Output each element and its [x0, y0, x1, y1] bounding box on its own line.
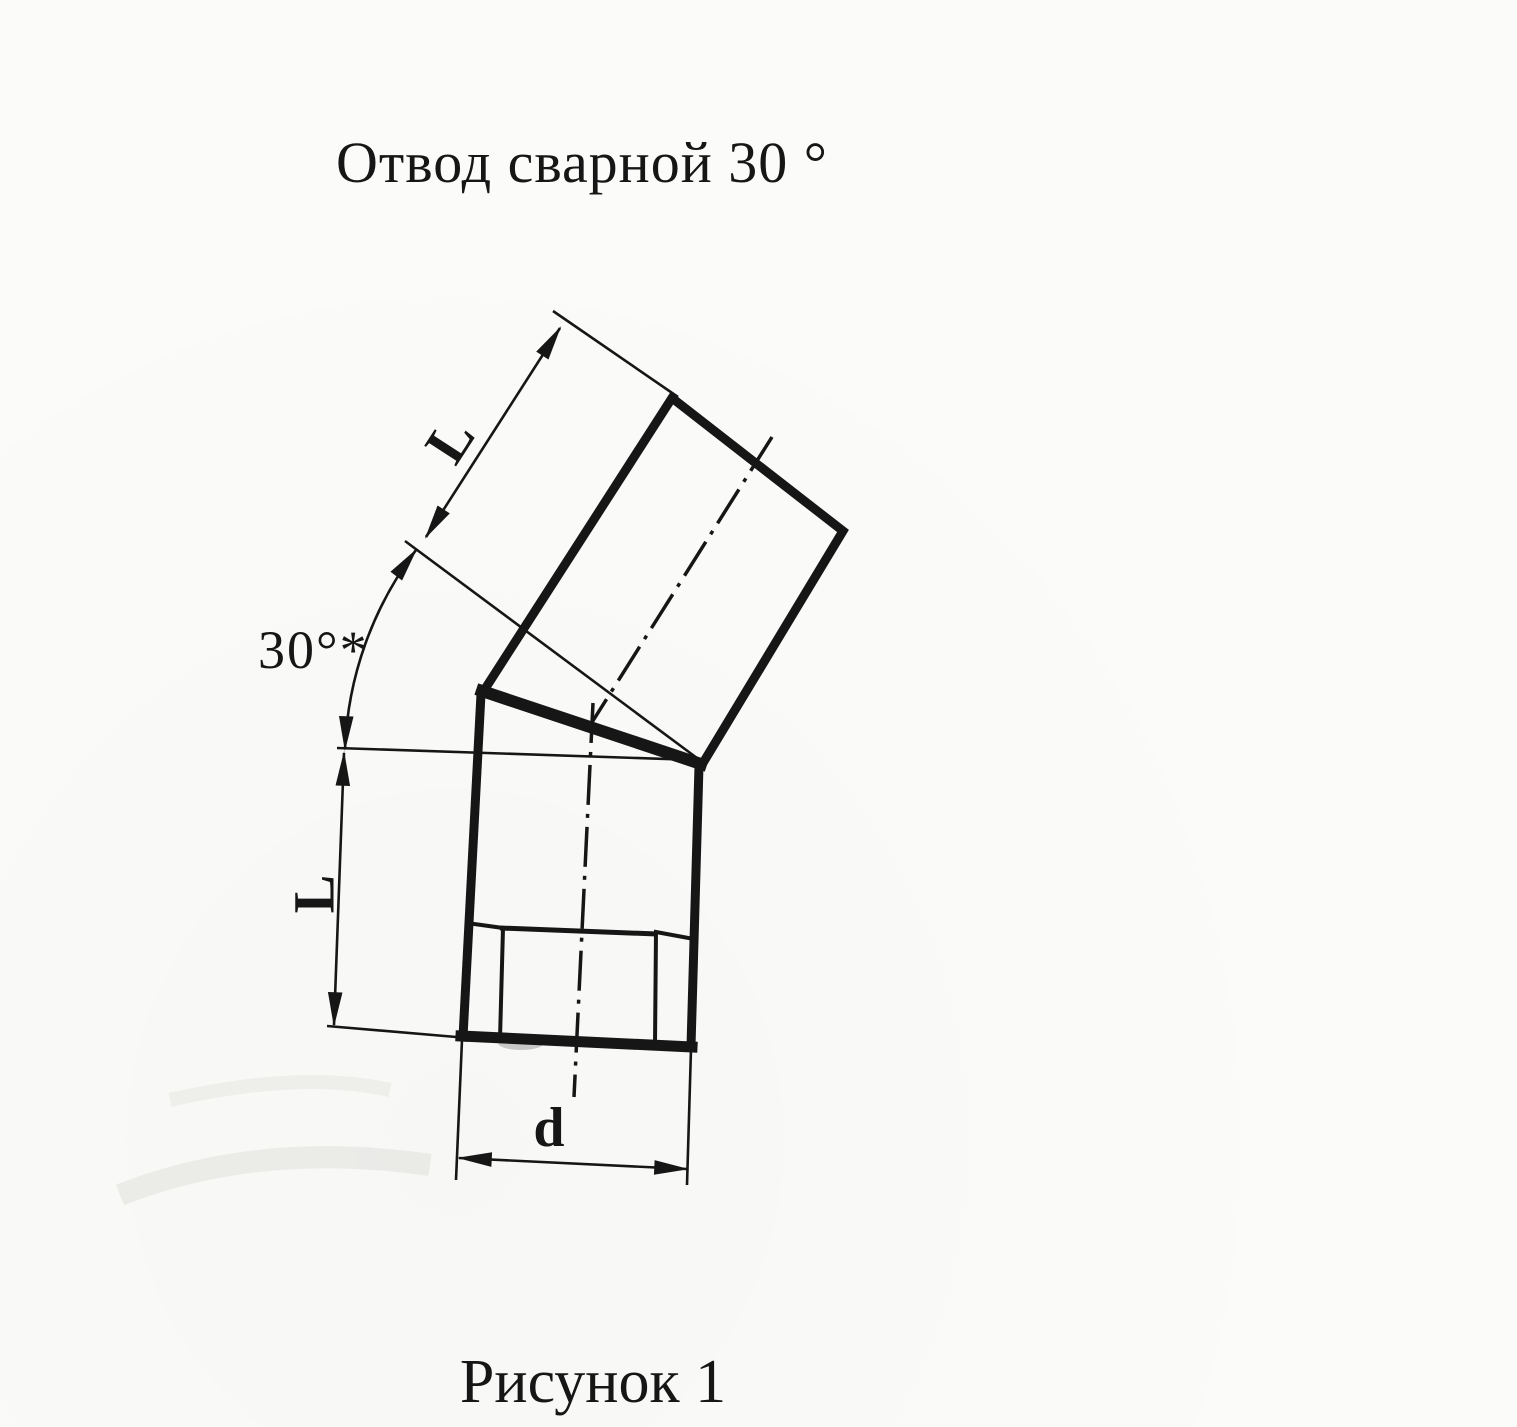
drawing-title: Отвод сварной 30 ° — [336, 130, 828, 195]
scan-streak — [120, 1157, 430, 1195]
scan-artifacts — [120, 1036, 544, 1195]
scanned-document-page: Отвод сварной 30 ° L — [0, 0, 1517, 1427]
figure-caption: Рисунок 1 — [460, 1348, 726, 1416]
scan-streak — [170, 1082, 390, 1100]
angle-label: 30°* — [258, 620, 369, 680]
inner-bore-line — [500, 928, 657, 934]
upper-length-label: L — [412, 407, 488, 475]
lower-length-dimension: L — [281, 753, 468, 1038]
technical-drawing: Отвод сварной 30 ° L — [0, 0, 1517, 1427]
extension-line — [553, 311, 678, 397]
dimension-line — [459, 1158, 687, 1169]
extension-line — [327, 1026, 468, 1038]
upper-length-dimension: L — [405, 311, 701, 761]
extension-line — [405, 541, 701, 761]
extension-line — [687, 1049, 691, 1185]
pipe-elbow — [461, 398, 843, 1047]
diameter-dimension: d — [456, 1040, 691, 1185]
centerlines — [574, 437, 772, 1097]
lower-length-label: L — [281, 875, 346, 914]
diameter-label: d — [533, 1097, 564, 1159]
